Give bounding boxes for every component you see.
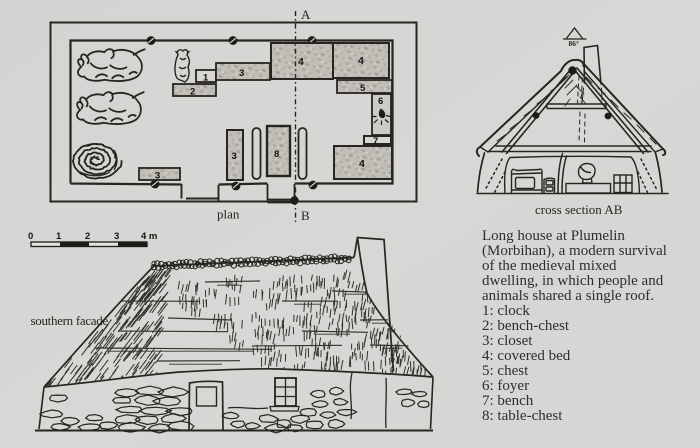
svg-text:plan: plan bbox=[217, 207, 240, 222]
svg-text:4: 4 bbox=[358, 55, 364, 67]
svg-text:8: 8 bbox=[274, 149, 279, 160]
svg-text:5: 5 bbox=[360, 83, 366, 94]
svg-text:1: 1 bbox=[56, 231, 62, 242]
svg-text:0: 0 bbox=[28, 231, 33, 242]
svg-text:6: 6 bbox=[378, 96, 383, 107]
svg-text:4: 4 bbox=[359, 158, 365, 170]
svg-text:3: 3 bbox=[232, 151, 237, 162]
svg-text:1: 1 bbox=[203, 73, 209, 84]
svg-text:2: 2 bbox=[85, 231, 90, 242]
svg-text:3: 3 bbox=[114, 231, 119, 242]
svg-text:4 m: 4 m bbox=[141, 231, 157, 242]
svg-text:86°: 86° bbox=[569, 39, 580, 48]
svg-text:southern facade: southern facade bbox=[31, 313, 109, 328]
svg-text:B: B bbox=[301, 208, 310, 223]
svg-text:cross section AB: cross section AB bbox=[535, 202, 623, 217]
svg-text:3: 3 bbox=[239, 68, 244, 79]
svg-text:A: A bbox=[301, 7, 311, 22]
svg-text:2: 2 bbox=[190, 87, 195, 98]
svg-text:3: 3 bbox=[155, 171, 160, 182]
svg-text:4: 4 bbox=[298, 56, 304, 68]
